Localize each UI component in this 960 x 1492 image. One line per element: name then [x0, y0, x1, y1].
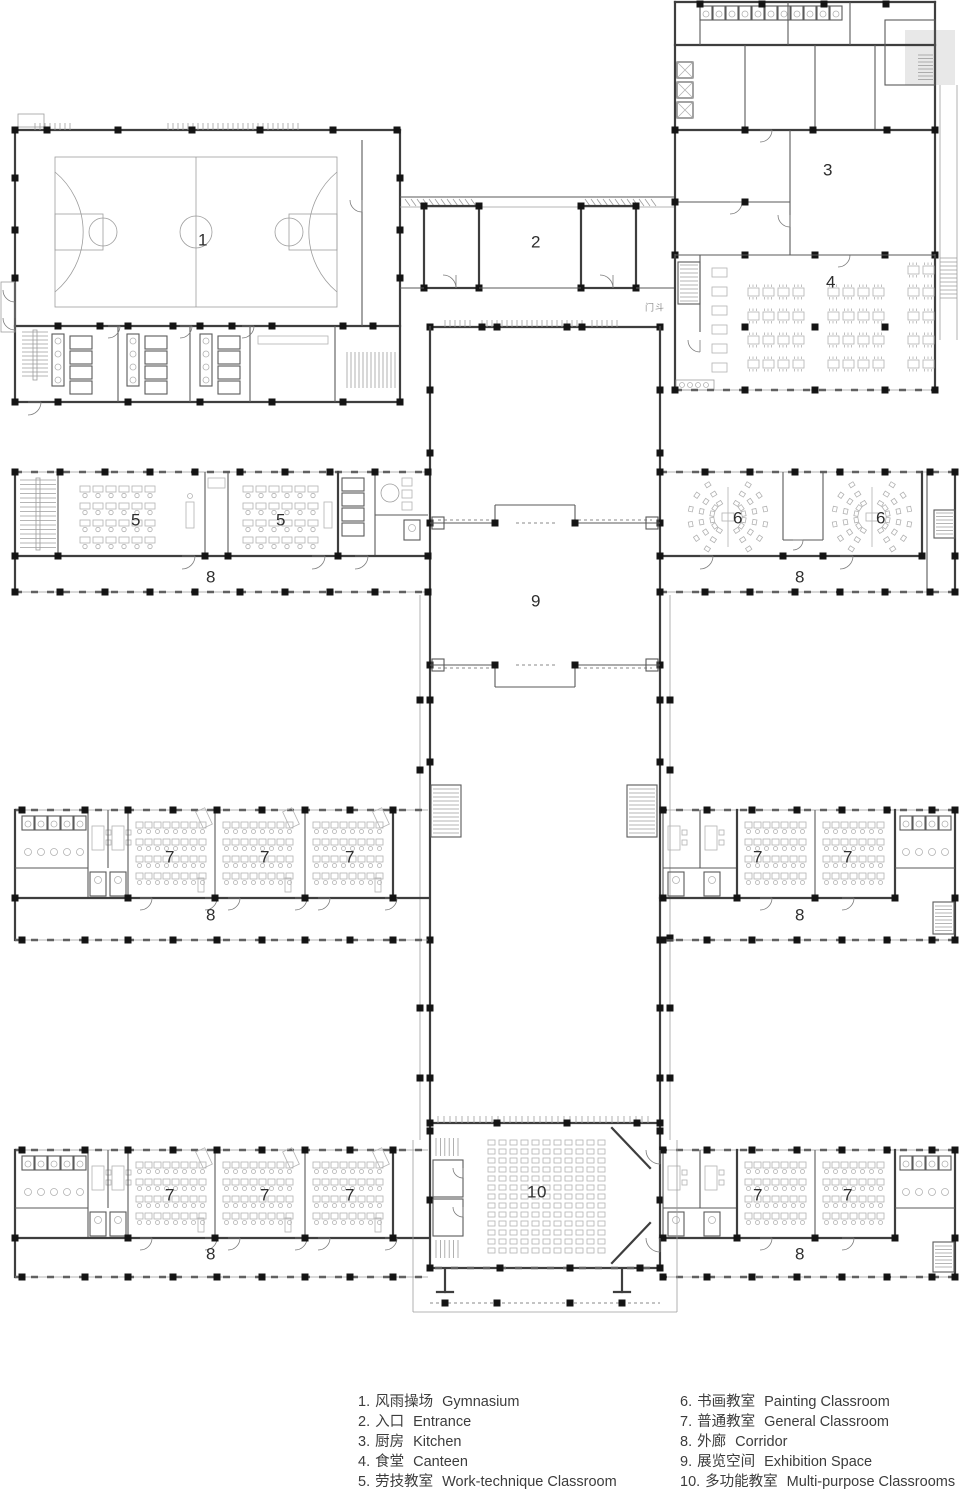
legend-item-8: 8.外廊Corridor — [680, 1432, 955, 1452]
legend-item-1: 1.风雨操场Gymnasium — [358, 1392, 617, 1412]
room-label-corridor-mid-left: 8 — [206, 568, 216, 588]
room-label-general-classroom-1: 7 — [165, 848, 175, 868]
room-label-multi-purpose-classroom: 10 — [527, 1183, 547, 1203]
room-label-general-classroom-9: 7 — [753, 1186, 763, 1206]
legend-item-3: 3.厨房Kitchen — [358, 1432, 617, 1452]
legend-item-9: 9.展览空间Exhibition Space — [680, 1452, 955, 1472]
room-label-general-classroom-4: 7 — [753, 848, 763, 868]
room-label-corridor-bottom-right: 8 — [795, 1245, 805, 1265]
legend: 1.风雨操场Gymnasium2.入口Entrance3.厨房Kitchen4.… — [0, 1392, 960, 1490]
room-label-corridor-mid-right: 8 — [795, 568, 805, 588]
room-label-work-technique-classroom-2: 5 — [276, 511, 286, 531]
room-label-general-classroom-2: 7 — [260, 848, 270, 868]
legend-item-5: 5.劳技教室Work-technique Classroom — [358, 1472, 617, 1492]
legend-item-2: 2.入口Entrance — [358, 1412, 617, 1432]
room-label-general-classroom-10: 7 — [843, 1186, 853, 1206]
legend-column-left: 1.风雨操场Gymnasium2.入口Entrance3.厨房Kitchen4.… — [358, 1392, 617, 1492]
room-label-kitchen: 3 — [823, 161, 833, 181]
room-label-general-classroom-6: 7 — [165, 1186, 175, 1206]
legend-item-6: 6.书画教室Painting Classroom — [680, 1392, 955, 1412]
room-label-general-classroom-8: 7 — [345, 1186, 355, 1206]
room-label-corridor-lower-left: 8 — [206, 906, 216, 926]
room-label-painting-classroom-2: 6 — [876, 509, 886, 529]
floor-plan-page: { "plan": { "room_labels": [ {"room":"gy… — [0, 0, 960, 1490]
legend-item-4: 4.食堂Canteen — [358, 1452, 617, 1472]
legend-column-right: 6.书画教室Painting Classroom7.普通教室General Cl… — [680, 1392, 955, 1492]
room-label-entrance: 2 — [531, 233, 541, 253]
room-label-corridor-bottom-left: 8 — [206, 1245, 216, 1265]
room-label-general-classroom-7: 7 — [260, 1186, 270, 1206]
room-label-work-technique-classroom-1: 5 — [131, 511, 141, 531]
floor-plan-drawing — [0, 0, 960, 1490]
room-label-corridor-lower-right: 8 — [795, 906, 805, 926]
room-label-painting-classroom-1: 6 — [733, 509, 743, 529]
legend-item-10: 10.多功能教室Multi-purpose Classrooms — [680, 1472, 955, 1492]
legend-item-7: 7.普通教室General Classroom — [680, 1412, 955, 1432]
room-label-exhibition-space: 9 — [531, 592, 541, 612]
room-label-general-classroom-5: 7 — [843, 848, 853, 868]
plan-annotation-vestibule-note: 门斗 — [645, 301, 665, 314]
room-label-gymnasium: 1 — [198, 231, 208, 251]
room-label-general-classroom-3: 7 — [345, 848, 355, 868]
room-label-canteen: 4 — [826, 273, 836, 293]
